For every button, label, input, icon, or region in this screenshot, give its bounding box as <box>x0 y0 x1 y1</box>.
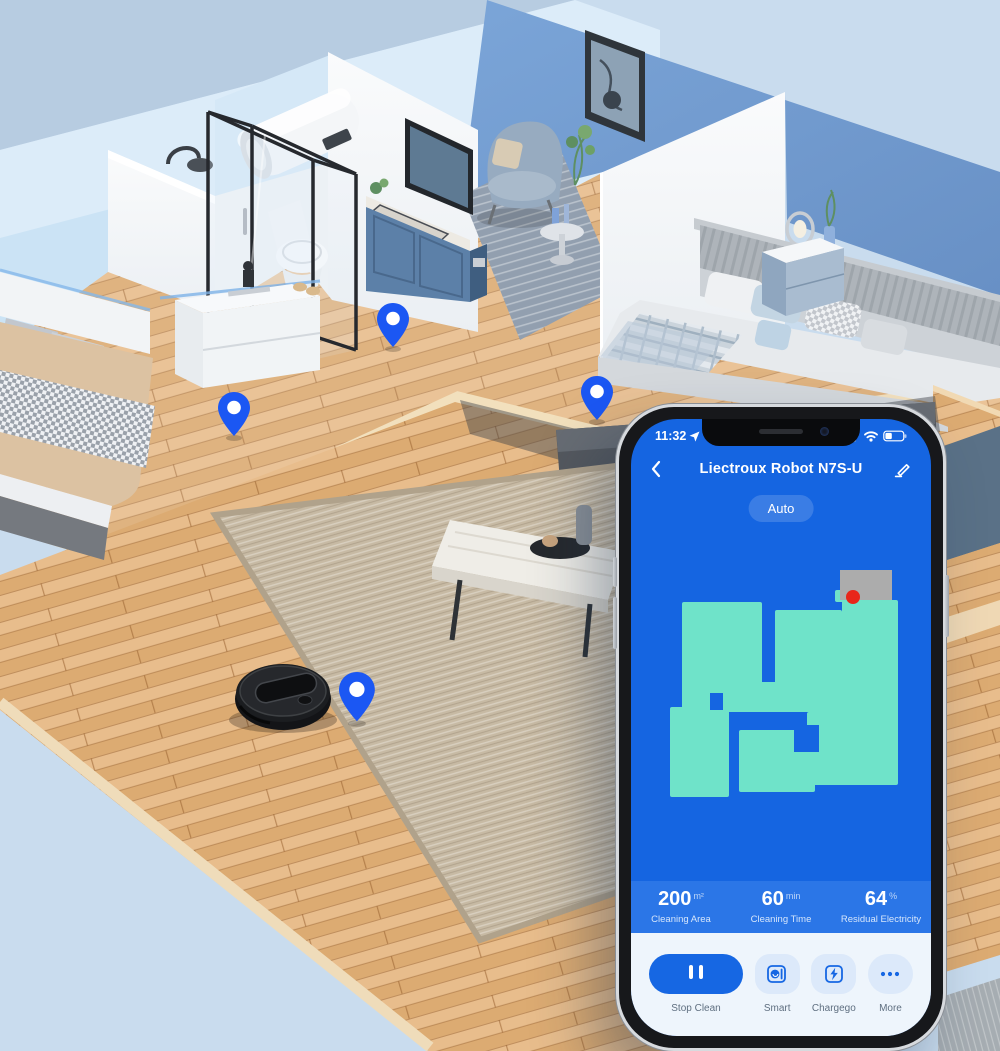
stat-label: Residual Electricity <box>831 914 931 925</box>
stat-residual-electricity: 64% Residual Electricity <box>831 888 931 925</box>
page: 11:32 <box>0 0 1000 1051</box>
action-label: Stop Clean <box>671 1003 720 1014</box>
smart-button[interactable] <box>755 954 800 994</box>
stat-label: Cleaning Time <box>731 914 831 925</box>
stat-value: 60 <box>762 888 784 910</box>
stat-unit: min <box>786 891 801 901</box>
stat-label: Cleaning Area <box>631 914 731 925</box>
stat-cleaning-time: 60min Cleaning Time <box>731 888 831 925</box>
power-button[interactable] <box>945 575 949 637</box>
action-panel: Stop Clean Smart <box>631 933 931 1036</box>
chargego-button[interactable] <box>811 954 856 994</box>
speaker-slot <box>759 429 803 434</box>
charge-bolt-icon <box>821 961 847 987</box>
pause-icon <box>686 965 706 984</box>
action-smart: Smart <box>755 954 800 1014</box>
more-button[interactable] <box>868 954 913 994</box>
action-label: Smart <box>764 1003 791 1014</box>
volume-down-button[interactable] <box>613 597 617 649</box>
cleaned-region <box>670 707 729 797</box>
stop-clean-button[interactable] <box>649 954 743 994</box>
wifi-icon <box>863 430 879 442</box>
stat-unit: m² <box>693 891 704 901</box>
uncleaned-gap <box>710 693 723 710</box>
uncleaned-gap <box>762 620 775 682</box>
app-header: Liectroux Robot N7S-U <box>631 457 931 481</box>
back-button[interactable] <box>649 457 663 481</box>
smartphone: 11:32 <box>616 404 946 1051</box>
volume-up-button[interactable] <box>613 557 617 587</box>
phone-notch <box>702 419 860 446</box>
uncleaned-gap <box>794 725 819 752</box>
action-more: More <box>868 954 913 1014</box>
stat-unit: % <box>889 891 897 901</box>
cleaned-region <box>775 610 842 694</box>
stat-cleaning-area: 200m² Cleaning Area <box>631 888 731 925</box>
status-time: 11:32 <box>655 429 686 443</box>
action-stop-clean: Stop Clean <box>649 954 743 1014</box>
app-screen: 11:32 <box>631 419 931 1036</box>
location-arrow-icon <box>689 431 700 442</box>
stat-value: 64 <box>865 888 887 910</box>
smart-mode-icon <box>764 961 790 987</box>
edit-pen-icon <box>893 460 911 478</box>
more-dots-icon <box>877 961 903 987</box>
back-chevron-icon <box>649 459 663 479</box>
front-camera <box>820 427 829 436</box>
action-chargego: Chargego <box>811 954 856 1014</box>
action-label: Chargego <box>812 1003 856 1014</box>
action-label: More <box>879 1003 902 1014</box>
stats-bar: 200m² Cleaning Area 60min Cleaning Time … <box>631 881 931 933</box>
cleaned-region <box>807 712 898 785</box>
edit-button[interactable] <box>893 457 911 481</box>
stat-value: 200 <box>658 888 691 910</box>
battery-icon <box>883 430 907 442</box>
partition-edge <box>600 172 603 364</box>
device-title: Liectroux Robot N7S-U <box>700 461 863 477</box>
cleaning-map[interactable] <box>631 515 929 881</box>
robot-position-dot <box>846 590 860 604</box>
uncleaned-gap <box>729 712 739 775</box>
